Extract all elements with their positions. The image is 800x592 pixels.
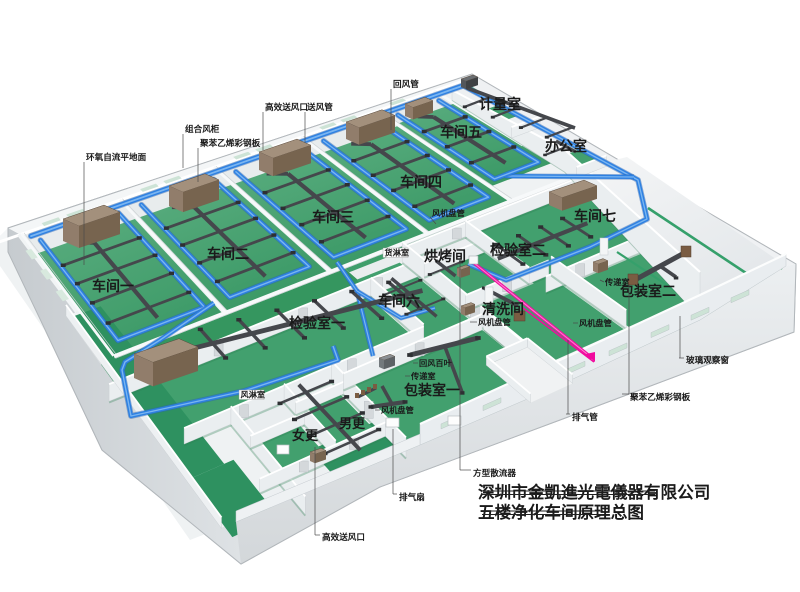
svg-text:车间五: 车间五 [440, 124, 482, 140]
svg-text:车间一: 车间一 [92, 278, 134, 294]
svg-text:货淋室: 货淋室 [384, 248, 410, 258]
svg-text:男更: 男更 [339, 416, 366, 431]
svg-text:高效送风口: 高效送风口 [265, 101, 308, 112]
svg-text:玻璃观察窗: 玻璃观察窗 [686, 354, 729, 365]
svg-text:深圳市金凱進光電儀器有限公司: 深圳市金凱進光電儀器有限公司 [478, 482, 710, 502]
svg-text:清洗间: 清洗间 [482, 301, 524, 317]
svg-text:办公室: 办公室 [545, 138, 587, 154]
svg-text:风淋室: 风淋室 [241, 390, 266, 400]
svg-text:女更: 女更 [292, 428, 319, 443]
svg-text:高效送风口: 高效送风口 [322, 531, 365, 542]
svg-text:回风百叶: 回风百叶 [419, 358, 453, 368]
svg-text:传递室: 传递室 [604, 277, 630, 287]
svg-text:方型散流器: 方型散流器 [473, 467, 516, 478]
svg-text:计量室: 计量室 [479, 96, 521, 112]
svg-text:送风管: 送风管 [306, 101, 333, 112]
svg-text:风机盘管: 风机盘管 [432, 208, 465, 218]
svg-text:组合风柜: 组合风柜 [185, 123, 220, 134]
svg-text:包装室一: 包装室一 [404, 382, 460, 398]
svg-text:传递室: 传递室 [410, 371, 436, 381]
svg-text:排气管: 排气管 [572, 411, 598, 422]
svg-text:检验室一: 检验室一 [289, 315, 345, 331]
svg-text:车间六: 车间六 [378, 293, 420, 309]
svg-text:聚苯乙烯彩钢板: 聚苯乙烯彩钢板 [629, 391, 691, 402]
svg-text:车间七: 车间七 [574, 208, 616, 224]
svg-text:回风管: 回风管 [393, 78, 419, 89]
svg-text:检验室二: 检验室二 [490, 242, 546, 258]
svg-text:车间三: 车间三 [312, 209, 354, 225]
svg-text:风机盘管: 风机盘管 [381, 405, 414, 415]
svg-text:五楼净化车间原理总图: 五楼净化车间原理总图 [478, 502, 644, 522]
svg-text:车间二: 车间二 [207, 246, 249, 262]
svg-text:车间四: 车间四 [400, 174, 442, 190]
svg-text:排气扇: 排气扇 [399, 491, 425, 502]
svg-text:聚苯乙烯彩钢板: 聚苯乙烯彩钢板 [199, 137, 261, 148]
svg-text:环氧自流平地面: 环氧自流平地面 [86, 151, 147, 162]
svg-text:风机盘管: 风机盘管 [478, 317, 511, 327]
svg-text:风机盘管: 风机盘管 [579, 318, 612, 328]
